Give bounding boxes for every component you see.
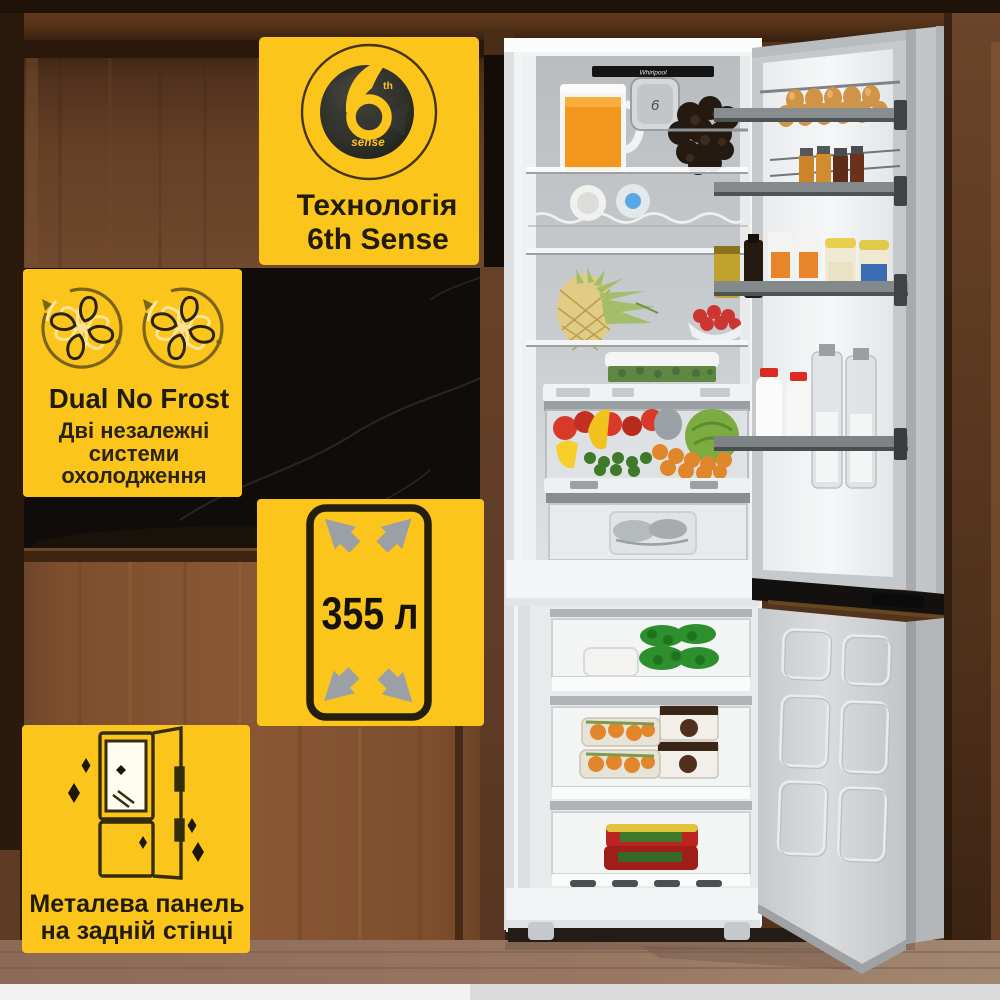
svg-text:Дві незалежні: Дві незалежні [59,418,209,443]
svg-text:6th Sense: 6th Sense [307,223,449,256]
svg-text:охолодження: охолодження [61,463,206,488]
svg-text:Whirlpool: Whirlpool [639,70,667,77]
svg-text:на задній стінці: на задній стінці [41,917,234,945]
svg-text:Металева панель: Металева панель [29,890,244,918]
svg-text:355 л: 355 л [322,588,419,639]
svg-text:6: 6 [651,97,660,114]
svg-text:sense: sense [351,137,385,149]
svg-text:th: th [383,80,393,92]
svg-text:Технологія: Технологія [297,189,458,222]
svg-text:Dual No Frost: Dual No Frost [49,383,229,414]
